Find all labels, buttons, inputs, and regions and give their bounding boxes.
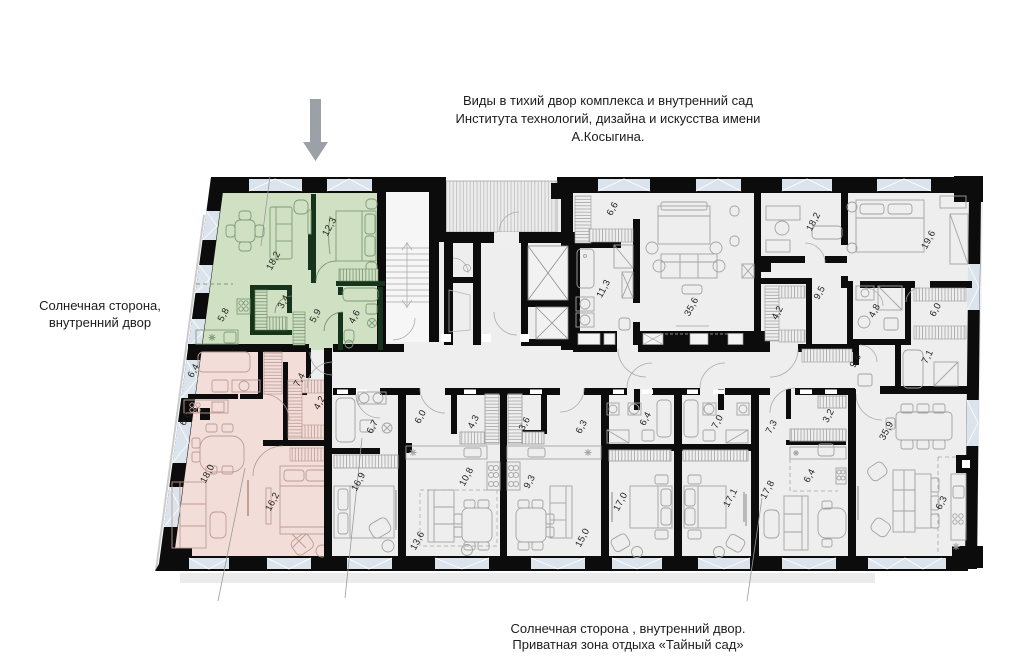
svg-text:Солнечная сторона,: Солнечная сторона, (39, 298, 161, 313)
svg-text:внутренний двор: внутренний двор (49, 315, 151, 330)
svg-text:Виды в тихий двор комплекса и: Виды в тихий двор комплекса и внутренний… (463, 93, 753, 108)
svg-text:Солнечная сторона , внутренний: Солнечная сторона , внутренний двор. (511, 621, 746, 636)
svg-text:Приватная зона отдыха «Тайный: Приватная зона отдыха «Тайный сад» (512, 637, 743, 652)
svg-text:Института технологий, дизайна: Института технологий, дизайна и искусств… (456, 111, 761, 126)
svg-text:А.Косыгина.: А.Косыгина. (572, 129, 645, 144)
